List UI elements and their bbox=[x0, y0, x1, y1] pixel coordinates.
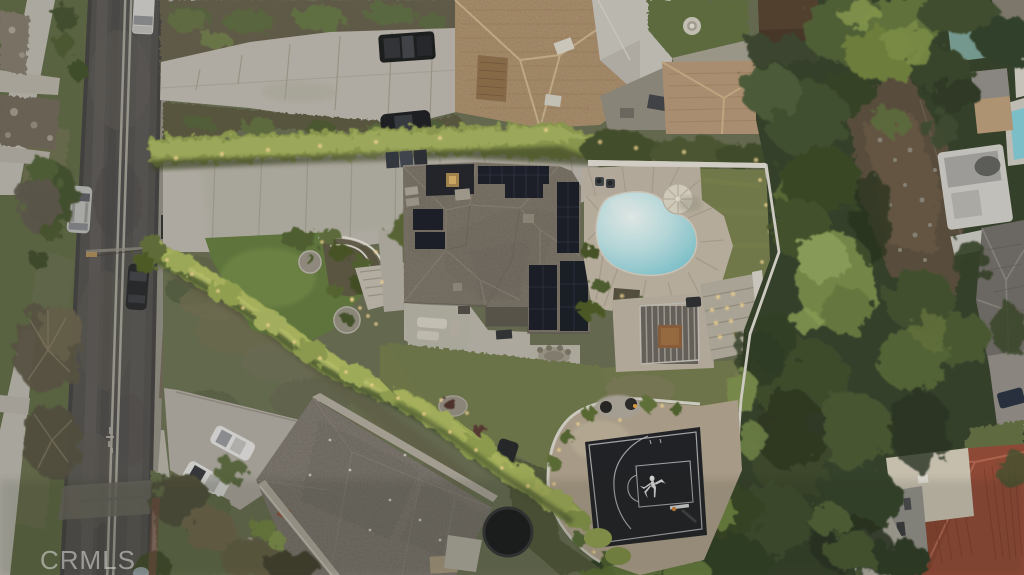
svg-text:CRMLS: CRMLS bbox=[40, 545, 136, 575]
